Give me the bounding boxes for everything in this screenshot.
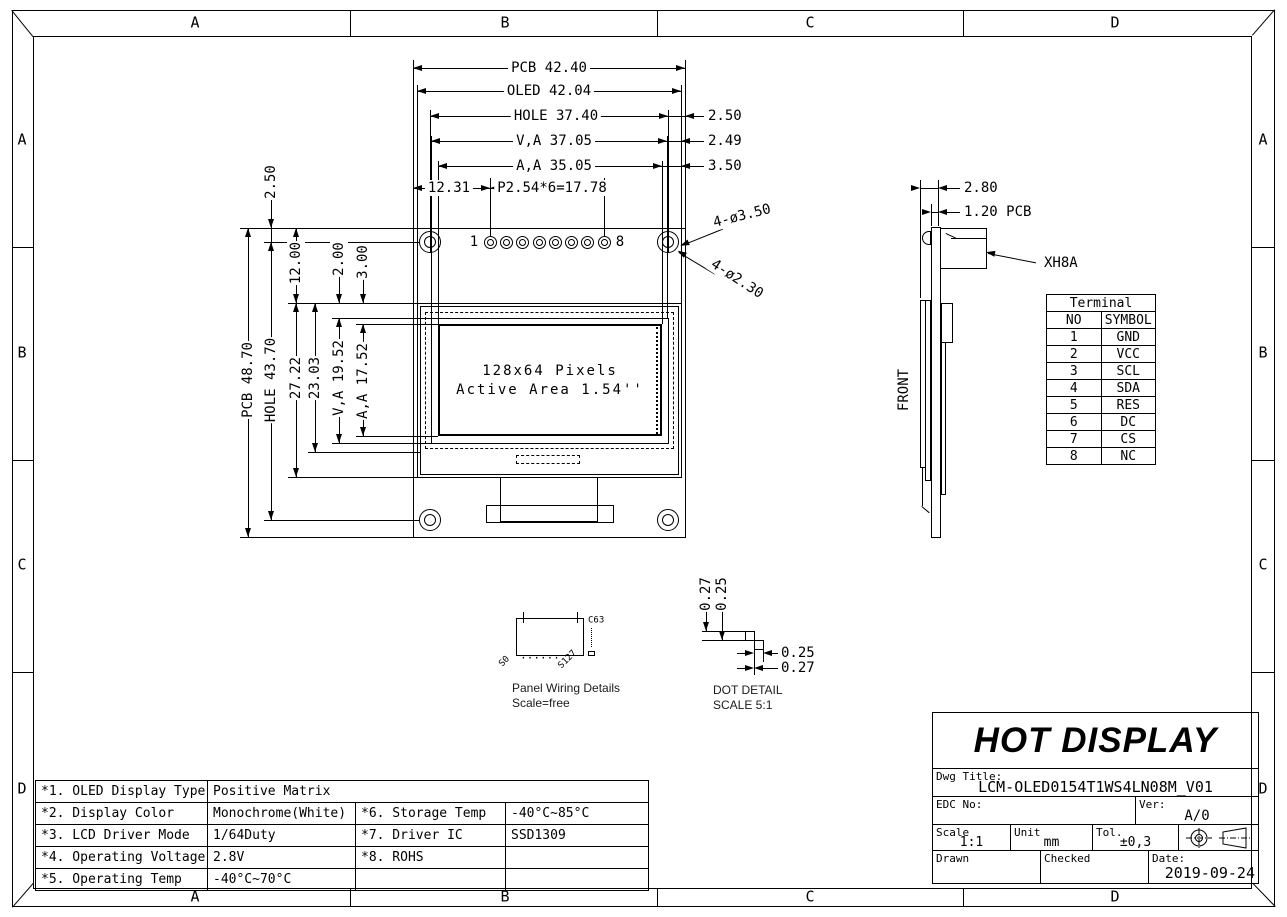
ext-line <box>356 324 438 325</box>
unit-label: Unit <box>1014 827 1041 838</box>
arrowhead <box>922 209 931 215</box>
arrowhead <box>653 163 662 169</box>
dim-line <box>931 212 938 213</box>
zone-letter: B <box>1258 346 1267 361</box>
side-flex <box>922 468 923 506</box>
ext-line <box>685 60 686 228</box>
scale-cell: Scale 1:1 <box>933 825 1011 851</box>
pin-number-first: 1 <box>467 234 481 250</box>
arrowhead <box>268 219 274 228</box>
zone-letter: D <box>17 782 26 797</box>
arrowhead <box>417 88 426 94</box>
arrowhead <box>413 185 422 191</box>
com-end-mark <box>588 651 595 656</box>
date-label: Date: <box>1152 853 1185 864</box>
zone-letter: D <box>1110 890 1119 905</box>
arrowhead <box>245 228 251 237</box>
terminal-col-no: NO <box>1047 312 1102 329</box>
dim-text: 27.22 <box>287 356 305 400</box>
dim-line <box>763 668 778 669</box>
table-row: *2. Display Color Monochrome(White) *6. … <box>36 803 649 825</box>
dim-text: 0.25 <box>713 576 731 612</box>
arrowhead <box>360 294 366 303</box>
arrowhead <box>360 427 366 436</box>
table-row: *5. Operating Temp -40°C~70°C <box>36 869 649 891</box>
dot-detail-scale: SCALE 5:1 <box>713 698 772 713</box>
arrowhead <box>268 511 274 520</box>
pin-pad <box>601 239 608 246</box>
zone-letter: C <box>805 890 814 905</box>
dim-line <box>947 188 960 189</box>
drawing-sheet: A B C D A B C D A B C D A B C D 128x64 P… <box>0 0 1287 917</box>
dim-text: OLED 42.04 <box>504 83 594 99</box>
dim-text: 1.20 PCB <box>962 204 1033 220</box>
connector-base <box>486 505 614 523</box>
dim-text: 12.00 <box>287 241 305 285</box>
dim-line <box>920 188 938 189</box>
tol-cell: Tol. ±0,3 <box>1093 825 1179 851</box>
unit-cell: Unit mm <box>1011 825 1093 851</box>
dim-text: 0.27 <box>779 660 817 676</box>
arrowhead <box>336 318 342 327</box>
scale-label: Scale <box>936 827 969 838</box>
dim-text: V,A 19.52 <box>330 339 348 417</box>
panel-wiring-scale: Scale=free <box>512 696 570 711</box>
wiring-dots: ...... <box>517 649 563 662</box>
com-label: C63 <box>587 617 605 626</box>
arrowhead <box>430 113 439 119</box>
pin-pad <box>536 239 543 246</box>
arrowhead <box>336 434 342 443</box>
zone-letter: B <box>500 16 509 31</box>
dim-text: 0.25 <box>779 645 817 661</box>
dim-text: HOLE 37.40 <box>511 108 601 124</box>
dim-text: 2.00 <box>330 241 348 277</box>
arrowhead <box>659 113 668 119</box>
ext-line <box>702 640 754 641</box>
table-row: 3SCL <box>1047 363 1156 380</box>
ext-line <box>332 318 431 319</box>
arrowhead <box>312 443 318 452</box>
pin-pad <box>519 239 526 246</box>
arrowhead <box>431 138 440 144</box>
zone-letter: D <box>1110 16 1119 31</box>
arrowhead <box>703 622 709 631</box>
zone-letter: A <box>17 133 26 148</box>
arrowhead <box>293 294 299 303</box>
zone-letter: C <box>1258 558 1267 573</box>
dotted-line <box>591 628 592 647</box>
zone-tick <box>350 889 351 907</box>
table-row: 6DC <box>1047 414 1156 431</box>
terminal-col-symbol: SYMBOL <box>1101 312 1156 329</box>
edc-cell: EDC No: <box>933 797 1136 825</box>
ext-line <box>681 85 682 303</box>
date-cell: Date: 2019-09-24 <box>1149 851 1258 884</box>
drawn-cell: Drawn <box>933 851 1041 884</box>
panel-wiring-caption: Panel Wiring Details <box>512 681 620 696</box>
edc-label: EDC No: <box>936 799 982 810</box>
arrowhead <box>681 163 690 169</box>
arrowhead <box>719 631 725 640</box>
ext-line <box>288 303 417 304</box>
arrowhead <box>672 88 681 94</box>
side-connector-notch <box>951 238 986 239</box>
zone-letter: B <box>17 346 26 361</box>
pin-pad <box>552 239 559 246</box>
dim-line <box>947 212 960 213</box>
dim-text: 3.00 <box>354 244 372 280</box>
table-row: *4. Operating Voltage 2.8V *8. ROHS <box>36 847 649 869</box>
zone-letter: C <box>17 558 26 573</box>
arrowhead <box>293 303 299 312</box>
zone-letter: C <box>805 16 814 31</box>
pixel-column-detail <box>656 327 658 434</box>
pin-number-last: 8 <box>613 234 627 250</box>
arrowhead <box>681 138 690 144</box>
zone-tick <box>657 889 658 907</box>
zone-letter: A <box>1258 133 1267 148</box>
arrowhead <box>676 65 685 71</box>
tick <box>577 612 578 623</box>
arrowhead <box>293 468 299 477</box>
table-row: 5RES <box>1047 397 1156 414</box>
arrowhead <box>754 665 763 671</box>
zone-tick <box>963 889 964 907</box>
ext-line <box>288 477 417 478</box>
dim-text: 23.03 <box>306 356 324 400</box>
active-area-text: Active Area 1.54'' <box>453 382 647 398</box>
dim-text: PCB 42.40 <box>508 60 590 76</box>
dim-text: HOLE 43.70 <box>262 337 280 423</box>
pin-pad <box>503 239 510 246</box>
front-label: FRONT <box>895 368 913 412</box>
dwg-title-label: Dwg Title: <box>936 771 1002 782</box>
table-row: 7CS <box>1047 431 1156 448</box>
ext-line <box>332 443 431 444</box>
dim-text: A,A 17.52 <box>354 342 372 420</box>
dim-text: A,A 35.05 <box>513 158 595 174</box>
dim-text: 12.31 <box>425 180 473 196</box>
connector-label: XH8A <box>1042 255 1080 271</box>
dim-text: 2.50 <box>262 164 280 200</box>
arrowhead <box>438 163 447 169</box>
title-block: HOT DISPLAY Dwg Title: LCM-OLED0154T1WS4… <box>932 712 1259 884</box>
arrowhead <box>268 242 274 251</box>
checked-label: Checked <box>1044 853 1090 864</box>
dim-text: 3.50 <box>706 158 744 174</box>
mounting-hole <box>424 514 436 526</box>
dot-square <box>754 640 764 650</box>
zone-tick <box>12 672 33 673</box>
ext-line <box>662 161 663 324</box>
arrowhead <box>312 303 318 312</box>
zone-letter: B <box>500 890 509 905</box>
ext-line <box>667 136 668 318</box>
tol-label: Tol. <box>1096 827 1123 838</box>
display-size-text: 128x64 Pixels <box>479 363 621 379</box>
arrowhead <box>745 665 754 671</box>
zone-tick <box>12 460 33 461</box>
zone-letter: D <box>1258 782 1267 797</box>
projection-angle-icon <box>1182 826 1256 850</box>
zone-tick <box>963 10 964 36</box>
ext-line <box>431 136 432 318</box>
dim-text: 2.50 <box>706 108 744 124</box>
ext-line <box>754 650 755 675</box>
pin-pad <box>584 239 591 246</box>
ext-line <box>240 537 413 538</box>
arrowhead <box>413 65 422 71</box>
side-tape <box>941 342 946 495</box>
table-row: *1. OLED Display Type Positive Matrix <box>36 781 649 803</box>
table-row: 2VCC <box>1047 346 1156 363</box>
pin-pad <box>487 239 494 246</box>
tick <box>523 612 524 623</box>
spec-table: *1. OLED Display Type Positive Matrix *2… <box>35 780 649 891</box>
side-component <box>941 303 953 343</box>
dot-detail-caption: DOT DETAIL <box>713 683 783 698</box>
company-name: HOT DISPLAY <box>933 721 1258 761</box>
ext-line <box>413 60 414 228</box>
arrowhead <box>360 324 366 333</box>
dim-text: PCB 48.70 <box>239 341 257 419</box>
dim-line <box>770 653 778 654</box>
projection-cell <box>1179 825 1258 851</box>
checked-cell: Checked <box>1041 851 1149 884</box>
dim-text: 2.49 <box>706 133 744 149</box>
pin-pad <box>568 239 575 246</box>
zone-letter: A <box>190 16 199 31</box>
arrowhead <box>938 185 947 191</box>
arrowhead <box>245 528 251 537</box>
ext-line <box>240 228 413 229</box>
dim-text: P2.54*6=17.78 <box>494 180 610 196</box>
ext-line <box>931 204 932 226</box>
arrowhead <box>685 113 694 119</box>
arrowhead <box>336 294 342 303</box>
ver-cell: Ver: A/0 <box>1136 797 1258 825</box>
zone-letter: A <box>190 890 199 905</box>
zone-tick <box>350 10 351 36</box>
ext-line <box>417 85 418 303</box>
ext-line <box>308 452 420 453</box>
drawn-label: Drawn <box>936 853 969 864</box>
arrowhead <box>745 650 754 656</box>
zone-tick <box>1252 247 1275 248</box>
arrowhead <box>658 138 667 144</box>
table-row: 1GND <box>1047 329 1156 346</box>
dwg-title-row: Dwg Title: LCM-OLED0154T1WS4LN08M_V01 <box>933 769 1258 797</box>
arrowhead <box>481 185 490 191</box>
zone-tick <box>657 10 658 36</box>
date-value: 2019-09-24 <box>1149 864 1258 882</box>
ver-label: Ver: <box>1139 799 1166 810</box>
arrowhead <box>911 185 920 191</box>
zone-tick <box>12 247 33 248</box>
table-row: *3. LCD Driver Mode 1/64Duty *7. Driver … <box>36 825 649 847</box>
ext-line <box>264 520 419 521</box>
zone-tick <box>1252 460 1275 461</box>
dim-text: 2.80 <box>962 180 1000 196</box>
ext-line <box>668 110 669 253</box>
side-panel-layer <box>925 300 931 481</box>
ext-line <box>920 180 921 298</box>
dim-text: V,A 37.05 <box>513 133 595 149</box>
active-area <box>438 324 662 436</box>
terminal-table: Terminal NO SYMBOL 1GND 2VCC 3SCL 4SDA 5… <box>1046 294 1156 465</box>
table-row: 4SDA <box>1047 380 1156 397</box>
arrowhead <box>938 209 947 215</box>
arrowhead <box>293 228 299 237</box>
side-pcb <box>931 227 941 538</box>
zone-tick <box>1252 672 1275 673</box>
flex-tab <box>516 455 580 464</box>
terminal-table-title: Terminal <box>1047 295 1156 312</box>
company-row: HOT DISPLAY <box>933 713 1258 769</box>
mounting-hole <box>662 514 674 526</box>
side-clip <box>922 231 931 245</box>
table-row: 8NC <box>1047 448 1156 465</box>
ext-line <box>356 436 438 437</box>
